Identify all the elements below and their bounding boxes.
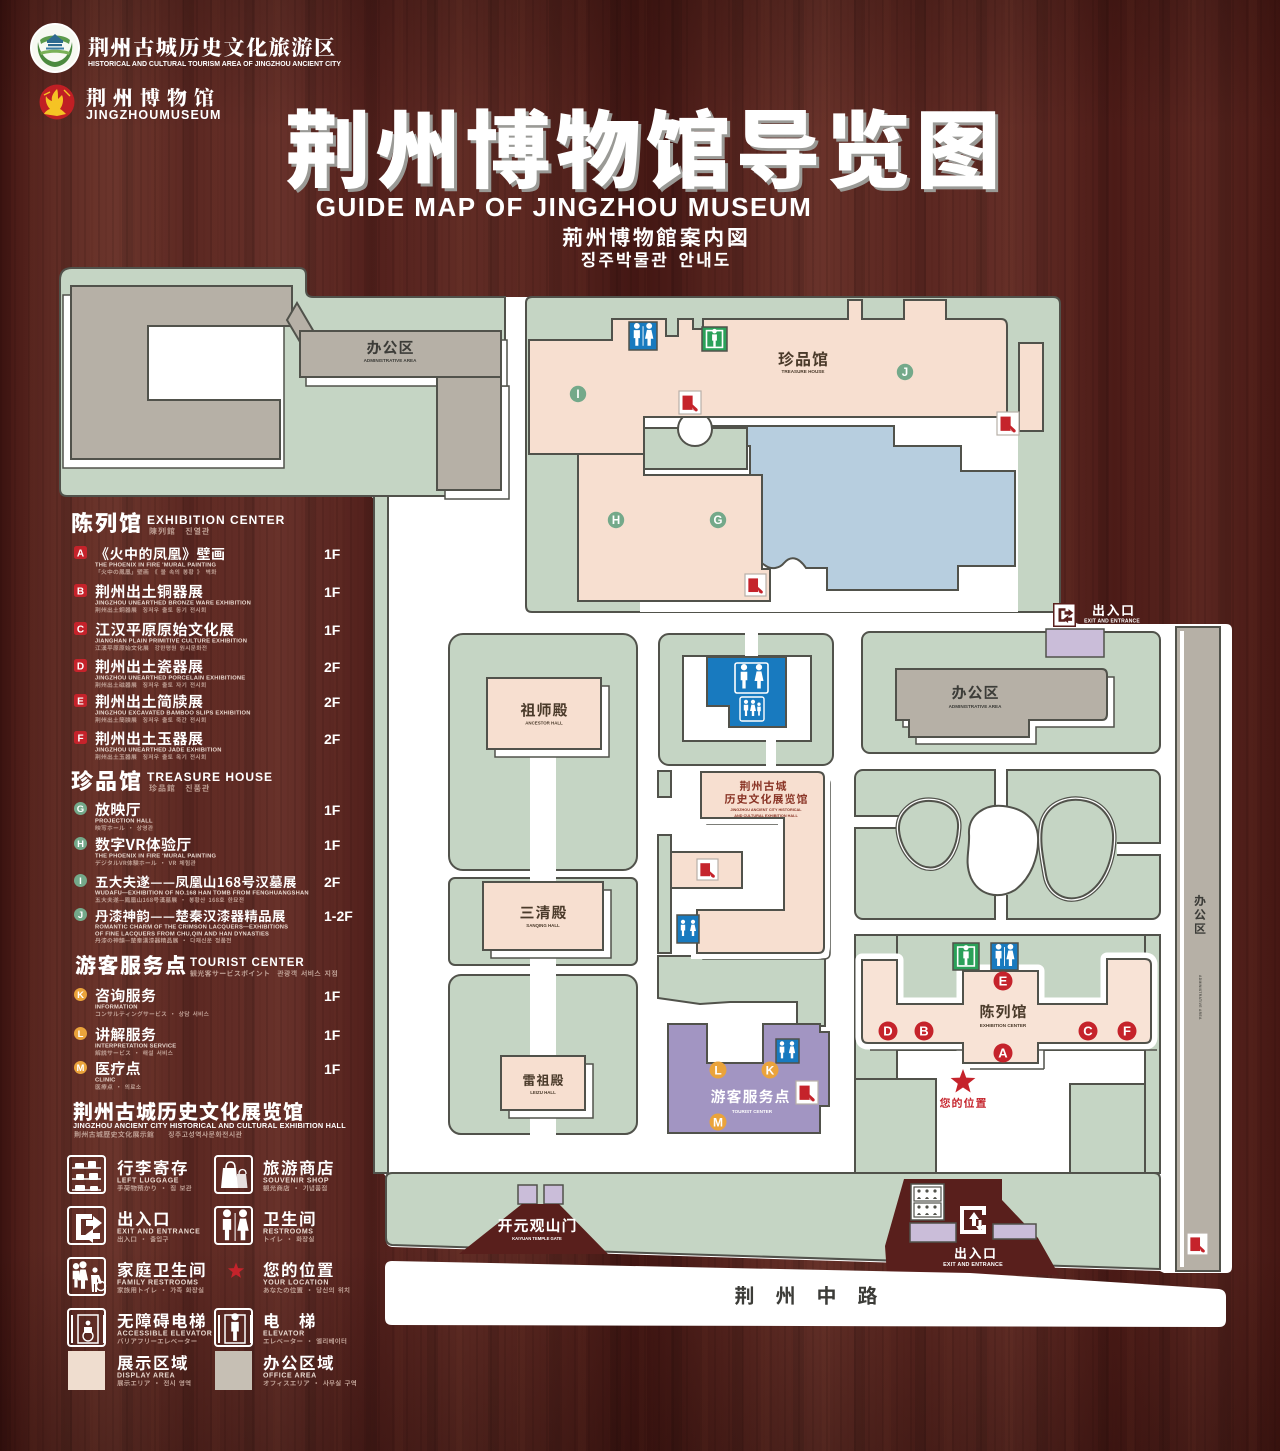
svg-text:G: G bbox=[77, 804, 84, 815]
svg-text:M: M bbox=[713, 1115, 723, 1129]
svg-text:TOURIST CENTER: TOURIST CENTER bbox=[732, 1109, 773, 1114]
svg-text:1F: 1F bbox=[324, 546, 341, 562]
svg-text:C: C bbox=[1083, 1024, 1093, 1039]
svg-text:C: C bbox=[77, 624, 84, 635]
svg-text:EXHIBITION CENTER: EXHIBITION CENTER bbox=[980, 1023, 1027, 1028]
svg-text:D: D bbox=[77, 661, 84, 672]
svg-text:DISPLAY AREA: DISPLAY AREA bbox=[117, 1373, 175, 1380]
svg-text:OF FINE LACQUERS FROM CHU,QIN: OF FINE LACQUERS FROM CHU,QIN AND HAN DY… bbox=[95, 932, 269, 938]
svg-text:ADMINISTRATIVE AREA: ADMINISTRATIVE AREA bbox=[949, 704, 1003, 709]
svg-text:HISTORICAL AND CULTURAL TOURIS: HISTORICAL AND CULTURAL TOURISM AREA OF … bbox=[88, 59, 341, 68]
svg-text:1F: 1F bbox=[324, 802, 341, 818]
svg-text:PROJECTION HALL: PROJECTION HALL bbox=[95, 819, 153, 825]
svg-text:F: F bbox=[77, 733, 83, 744]
svg-text:1F: 1F bbox=[324, 837, 341, 853]
svg-text:EXHIBITION CENTER: EXHIBITION CENTER bbox=[147, 513, 285, 527]
svg-text:2F: 2F bbox=[324, 694, 341, 710]
svg-text:I: I bbox=[576, 389, 579, 401]
svg-text:JINGZHOU UNEARTHED PORCELAIN E: JINGZHOU UNEARTHED PORCELAIN EXHIBITIONE bbox=[95, 676, 245, 682]
svg-text:EXIT AND ENTRANCE: EXIT AND ENTRANCE bbox=[943, 1262, 1003, 1268]
svg-text:J: J bbox=[902, 367, 908, 379]
svg-text:JINGZHOU ANCIENT CITY HISTORIC: JINGZHOU ANCIENT CITY HISTORICAL bbox=[730, 808, 802, 812]
svg-text:ACCESSIBLE ELEVATOR: ACCESSIBLE ELEVATOR bbox=[117, 1331, 212, 1338]
svg-text:1-2F: 1-2F bbox=[324, 908, 353, 924]
svg-text:LEIZU HALL: LEIZU HALL bbox=[530, 1090, 556, 1095]
svg-text:G: G bbox=[714, 515, 723, 527]
svg-text:B: B bbox=[919, 1024, 928, 1039]
svg-text:1F: 1F bbox=[324, 584, 341, 600]
svg-text:H: H bbox=[77, 839, 84, 850]
svg-text:EXIT AND ENTRANCE: EXIT AND ENTRANCE bbox=[1084, 619, 1140, 625]
svg-text:JINGZHOU ANCIENT CITY HISTORIC: JINGZHOU ANCIENT CITY HISTORICAL AND CUL… bbox=[73, 1121, 346, 1130]
svg-text:ADMINISTRATIVE AREA: ADMINISTRATIVE AREA bbox=[364, 358, 418, 363]
svg-text:2F: 2F bbox=[324, 731, 341, 747]
svg-text:GUIDE MAP OF JINGZHOU MUSEUM: GUIDE MAP OF JINGZHOU MUSEUM bbox=[316, 192, 813, 222]
svg-text:INFORMATION: INFORMATION bbox=[95, 1005, 138, 1011]
svg-text:KAIYUAN TEMPLE GATE: KAIYUAN TEMPLE GATE bbox=[512, 1236, 562, 1241]
svg-text:B: B bbox=[77, 586, 84, 597]
svg-text:1F: 1F bbox=[324, 622, 341, 638]
svg-text:JINGZHOUMUSEUM: JINGZHOUMUSEUM bbox=[86, 108, 222, 122]
svg-text:INTERPRETATION SERVICE: INTERPRETATION SERVICE bbox=[95, 1044, 176, 1050]
svg-text:OFFICE AREA: OFFICE AREA bbox=[263, 1373, 317, 1380]
svg-text:K: K bbox=[77, 990, 84, 1001]
svg-text:AND CULTURAL EXHIBITION HALL: AND CULTURAL EXHIBITION HALL bbox=[734, 814, 798, 818]
svg-text:CLINIC: CLINIC bbox=[95, 1078, 116, 1084]
svg-text:JINGZHOU UNEARTHED BRONZE WARE: JINGZHOU UNEARTHED BRONZE WARE EXHIBITIO… bbox=[95, 601, 251, 607]
svg-text:TREASURE HOUSE: TREASURE HOUSE bbox=[782, 369, 825, 374]
svg-text:F: F bbox=[1123, 1024, 1131, 1039]
svg-text:1F: 1F bbox=[324, 1061, 341, 1077]
svg-text:WUDAFU—EXHIBITION OF NO.168 HA: WUDAFU—EXHIBITION OF NO.168 HAN TOMB FRO… bbox=[95, 891, 309, 897]
svg-text:2F: 2F bbox=[324, 659, 341, 675]
svg-text:A: A bbox=[998, 1046, 1008, 1061]
svg-text:TREASURE HOUSE: TREASURE HOUSE bbox=[147, 770, 273, 784]
svg-text:EXIT AND ENTRANCE: EXIT AND ENTRANCE bbox=[117, 1229, 200, 1236]
svg-text:THE PHOENIX IN FIRE 'MURAL PAI: THE PHOENIX IN FIRE 'MURAL PAINTING bbox=[95, 563, 216, 569]
svg-text:LEFT LUGGAGE: LEFT LUGGAGE bbox=[117, 1178, 179, 1185]
svg-text:L: L bbox=[78, 1029, 84, 1040]
svg-text:K: K bbox=[766, 1063, 775, 1077]
svg-text:FAMILY RESTROOMS: FAMILY RESTROOMS bbox=[117, 1280, 199, 1287]
svg-text:SOUVENIR SHOP: SOUVENIR SHOP bbox=[263, 1178, 329, 1185]
svg-text:M: M bbox=[77, 1063, 85, 1074]
svg-text:TOURIST CENTER: TOURIST CENTER bbox=[190, 957, 305, 969]
svg-text:YOUR LOCATION: YOUR LOCATION bbox=[263, 1280, 329, 1287]
svg-text:A: A bbox=[77, 548, 84, 559]
svg-text:H: H bbox=[612, 515, 620, 527]
svg-text:ANCESTOR HALL: ANCESTOR HALL bbox=[525, 721, 563, 726]
svg-text:L: L bbox=[714, 1063, 721, 1077]
svg-text:ADMINISTRATIVE AREA: ADMINISTRATIVE AREA bbox=[1198, 975, 1202, 1020]
svg-text:JINGZHOU UNEARTHED JADE EXHIBI: JINGZHOU UNEARTHED JADE EXHIBITION bbox=[95, 748, 222, 754]
svg-text:1F: 1F bbox=[324, 988, 341, 1004]
svg-text:ROMANTIC CHARM OF THE CRIMSON: ROMANTIC CHARM OF THE CRIMSON LACQUERS—E… bbox=[95, 925, 288, 931]
svg-text:I: I bbox=[79, 876, 82, 887]
svg-text:D: D bbox=[883, 1024, 892, 1039]
svg-text:ELEVATOR: ELEVATOR bbox=[263, 1331, 305, 1338]
svg-text:SANQING HALL: SANQING HALL bbox=[526, 923, 560, 928]
svg-text:2F: 2F bbox=[324, 874, 341, 890]
svg-text:E: E bbox=[77, 696, 84, 707]
svg-text:E: E bbox=[999, 974, 1008, 989]
svg-text:JIANGHAN PLAIN PRIMITIVE CULTU: JIANGHAN PLAIN PRIMITIVE CULTURE EXHIBIT… bbox=[95, 639, 247, 645]
svg-text:J: J bbox=[78, 910, 83, 921]
svg-text:RESTROOMS: RESTROOMS bbox=[263, 1229, 314, 1236]
svg-text:JINGZHOU EXCAVATED BAMBOO SLIP: JINGZHOU EXCAVATED BAMBOO SLIPS EXHIBITI… bbox=[95, 711, 251, 717]
svg-text:THE PHOENIX IN FIRE 'MURAL PAI: THE PHOENIX IN FIRE 'MURAL PAINTING bbox=[95, 854, 216, 860]
svg-text:1F: 1F bbox=[324, 1027, 341, 1043]
